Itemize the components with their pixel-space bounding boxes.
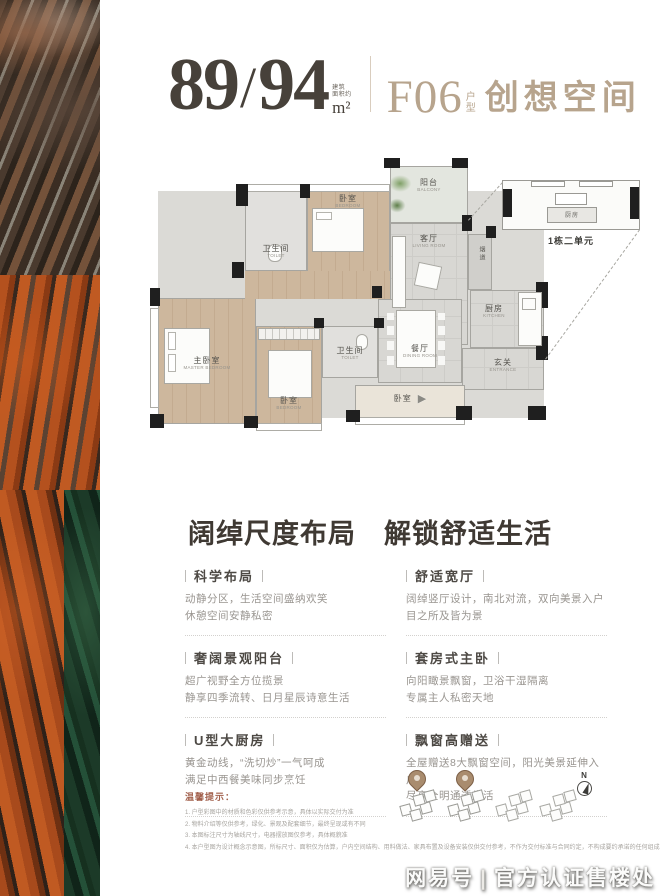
label-toilet-top: 卫生间 TOILET xyxy=(246,244,306,259)
title-bar xyxy=(498,734,499,746)
title-bar xyxy=(406,734,407,746)
inset-room-label: 厨房 xyxy=(547,207,597,223)
title-bar xyxy=(406,652,407,664)
title-bar xyxy=(498,652,499,664)
label-bedroom-right: 卧室 ▶ xyxy=(357,392,463,405)
coffee-table xyxy=(414,262,442,290)
wall-column xyxy=(528,406,546,420)
title-bar xyxy=(292,652,293,664)
feature-line: 静享四季流转、日月星辰诗意生活 xyxy=(185,690,386,707)
header: 89 / 94 建筑 面积约 m² F06 户型 创想空间 xyxy=(168,28,648,120)
feature-balcony: 奢阔景观阳台 超广视野全方位揽景 静享四季流转、日月星辰诗意生活 xyxy=(185,648,386,718)
unit-key-caption: 1栋二单元 xyxy=(502,234,640,247)
feature-line: 目之所及皆为景 xyxy=(406,608,607,625)
label-dining: 餐厅 DINING ROOM xyxy=(380,344,460,359)
inset-window xyxy=(579,181,613,187)
building-cluster-icon xyxy=(446,789,486,828)
wall-column xyxy=(236,184,248,206)
wall-column xyxy=(384,158,400,168)
art-strip-middle xyxy=(0,275,100,490)
label-entrance: 玄关 ENTRANCE xyxy=(464,358,542,373)
location-pin-dot xyxy=(414,775,420,781)
area-value-right: 94 xyxy=(258,50,328,120)
unit-code: F06 xyxy=(387,75,463,120)
area-note: 建筑 xyxy=(332,85,345,92)
tip-line: 4. 本户型图为设计概念示意图，所标尺寸、面积仅为估算，户内空间结构、用料做法、… xyxy=(185,843,605,855)
feature-title: 科学布局 xyxy=(194,566,254,585)
area-slash: / xyxy=(238,56,258,120)
pillow xyxy=(316,212,332,220)
wall-column xyxy=(244,416,258,428)
feature-title: 舒适宽厅 xyxy=(415,566,475,585)
wall-column xyxy=(346,410,360,422)
feature-line: 黄金动线，“洗切炒”一气呵成 xyxy=(185,755,386,772)
art-strip-green-panel xyxy=(64,490,100,896)
feature-line: 向阳瞰景飘窗，卫浴干湿隔离 xyxy=(406,673,607,690)
title-bar xyxy=(273,734,274,746)
entry-arrow-icon: ▶ xyxy=(418,392,426,405)
wall-column xyxy=(486,226,496,238)
art-strip-orange-column xyxy=(0,490,64,896)
site-plan-icons: N xyxy=(398,770,593,828)
projection-line xyxy=(545,229,640,359)
feature-line: 满足中西餐美味同步烹饪 xyxy=(185,772,386,789)
room-balcony xyxy=(390,166,468,223)
room-flue xyxy=(468,234,492,290)
kitchen-sink xyxy=(522,298,536,310)
watermark-text: 官方认证售楼处 xyxy=(494,867,655,890)
inset-window xyxy=(531,181,565,187)
feature-line: 专属主人私密天地 xyxy=(406,690,607,707)
wall-column xyxy=(372,286,382,298)
corridor xyxy=(245,271,390,299)
wall-column xyxy=(314,318,324,328)
area-unit-stack: 建筑 面积约 m² xyxy=(332,85,352,116)
area-value-left: 89 xyxy=(168,50,238,120)
pillow xyxy=(168,332,176,350)
unit-name: 创想空间 xyxy=(485,82,641,116)
location-pin-dot xyxy=(462,775,468,781)
wall-column xyxy=(374,318,384,328)
feature-line: 休憩空间安静私密 xyxy=(185,608,386,625)
title-bar xyxy=(262,570,263,582)
tip-line: 3. 本图标注尺寸为轴线尺寸，电器摆放图仅参考，具体概貌准 xyxy=(185,831,605,843)
bay-window-bottom-1 xyxy=(256,423,322,431)
label-balcony: 阳台 BALCONY xyxy=(392,178,466,193)
feature-title: 奢阔景观阳台 xyxy=(194,648,284,667)
inset-column xyxy=(503,189,512,217)
title-bar xyxy=(185,570,186,582)
title-bar xyxy=(406,570,407,582)
floor-plan: 卫生间 TOILET 卧室 BEDROOM 阳台 BALCONY 客厅 LIVI… xyxy=(150,158,650,473)
compass-icon: N xyxy=(575,772,593,796)
label-master-bedroom: 主卧室 MASTER BEDROOM xyxy=(160,356,254,371)
bay-window-bottom-2 xyxy=(355,417,465,425)
feature-science-layout: 科学布局 动静分区，生活空间盛纳欢笑 休憩空间安静私密 xyxy=(185,566,386,636)
inset-core xyxy=(555,193,587,205)
wardrobe xyxy=(258,328,320,340)
poster-page: 89 / 94 建筑 面积约 m² F06 户型 创想空间 xyxy=(0,0,660,896)
label-kitchen: 厨房 KITCHEN xyxy=(470,304,518,319)
wall-column xyxy=(300,184,310,198)
section-headline: 阔绰尺度布局 解锁舒适生活 xyxy=(188,512,552,551)
compass-n-label: N xyxy=(575,772,593,780)
watermark-brand: 网易号 xyxy=(405,867,474,890)
watermark: 网易号|官方认证售楼处 xyxy=(405,862,655,892)
title-bar xyxy=(185,652,186,664)
feature-title: U型大厨房 xyxy=(194,730,265,749)
unit-code-suffix: 户型 xyxy=(466,92,477,114)
feature-title: 套房式主卧 xyxy=(415,648,490,667)
label-bedroom-bottom: 卧室 BEDROOM xyxy=(258,396,320,411)
feature-title: 飘窗高赠送 xyxy=(415,730,490,749)
title-bar xyxy=(483,570,484,582)
building-cluster-icon xyxy=(398,789,438,828)
header-divider xyxy=(370,56,371,112)
bay-window-top xyxy=(245,184,390,192)
unit-key-plan: 厨房 xyxy=(502,180,640,230)
wall-column xyxy=(150,414,164,428)
feature-line: 动静分区，生活空间盛纳欢笑 xyxy=(185,591,386,608)
feature-suite-master: 套房式主卧 向阳瞰景飘窗，卫浴干湿隔离 专属主人私密天地 xyxy=(406,648,607,718)
wall-column xyxy=(456,406,472,420)
label-toilet-bottom: 卫生间 TOILET xyxy=(324,346,376,361)
feature-line: 超广视野全方位揽景 xyxy=(185,673,386,690)
wall-column xyxy=(232,262,244,278)
dining-table xyxy=(396,310,436,368)
feature-line: 阔绰竖厅设计，南北对流，双向美景入户 xyxy=(406,591,607,608)
label-bedroom-top: 卧室 BEDROOM xyxy=(310,194,386,209)
inset-column xyxy=(630,187,639,219)
label-living: 客厅 LIVING ROOM xyxy=(392,234,466,249)
building-cluster-icon xyxy=(494,789,534,828)
feature-wide-hall: 舒适宽厅 阔绰竖厅设计，南北对流，双向美景入户 目之所及皆为景 xyxy=(406,566,607,636)
wall-column xyxy=(452,158,468,168)
art-strip-top xyxy=(0,0,100,275)
building-cluster-icon xyxy=(538,789,578,828)
label-flue: 烟道 xyxy=(477,246,486,262)
area-unit: m² xyxy=(332,99,350,116)
bay-window-left xyxy=(150,308,159,408)
title-bar xyxy=(185,734,186,746)
wall-column xyxy=(150,288,160,306)
bed-bottom-bedroom xyxy=(268,350,312,398)
watermark-divider: | xyxy=(474,867,494,890)
